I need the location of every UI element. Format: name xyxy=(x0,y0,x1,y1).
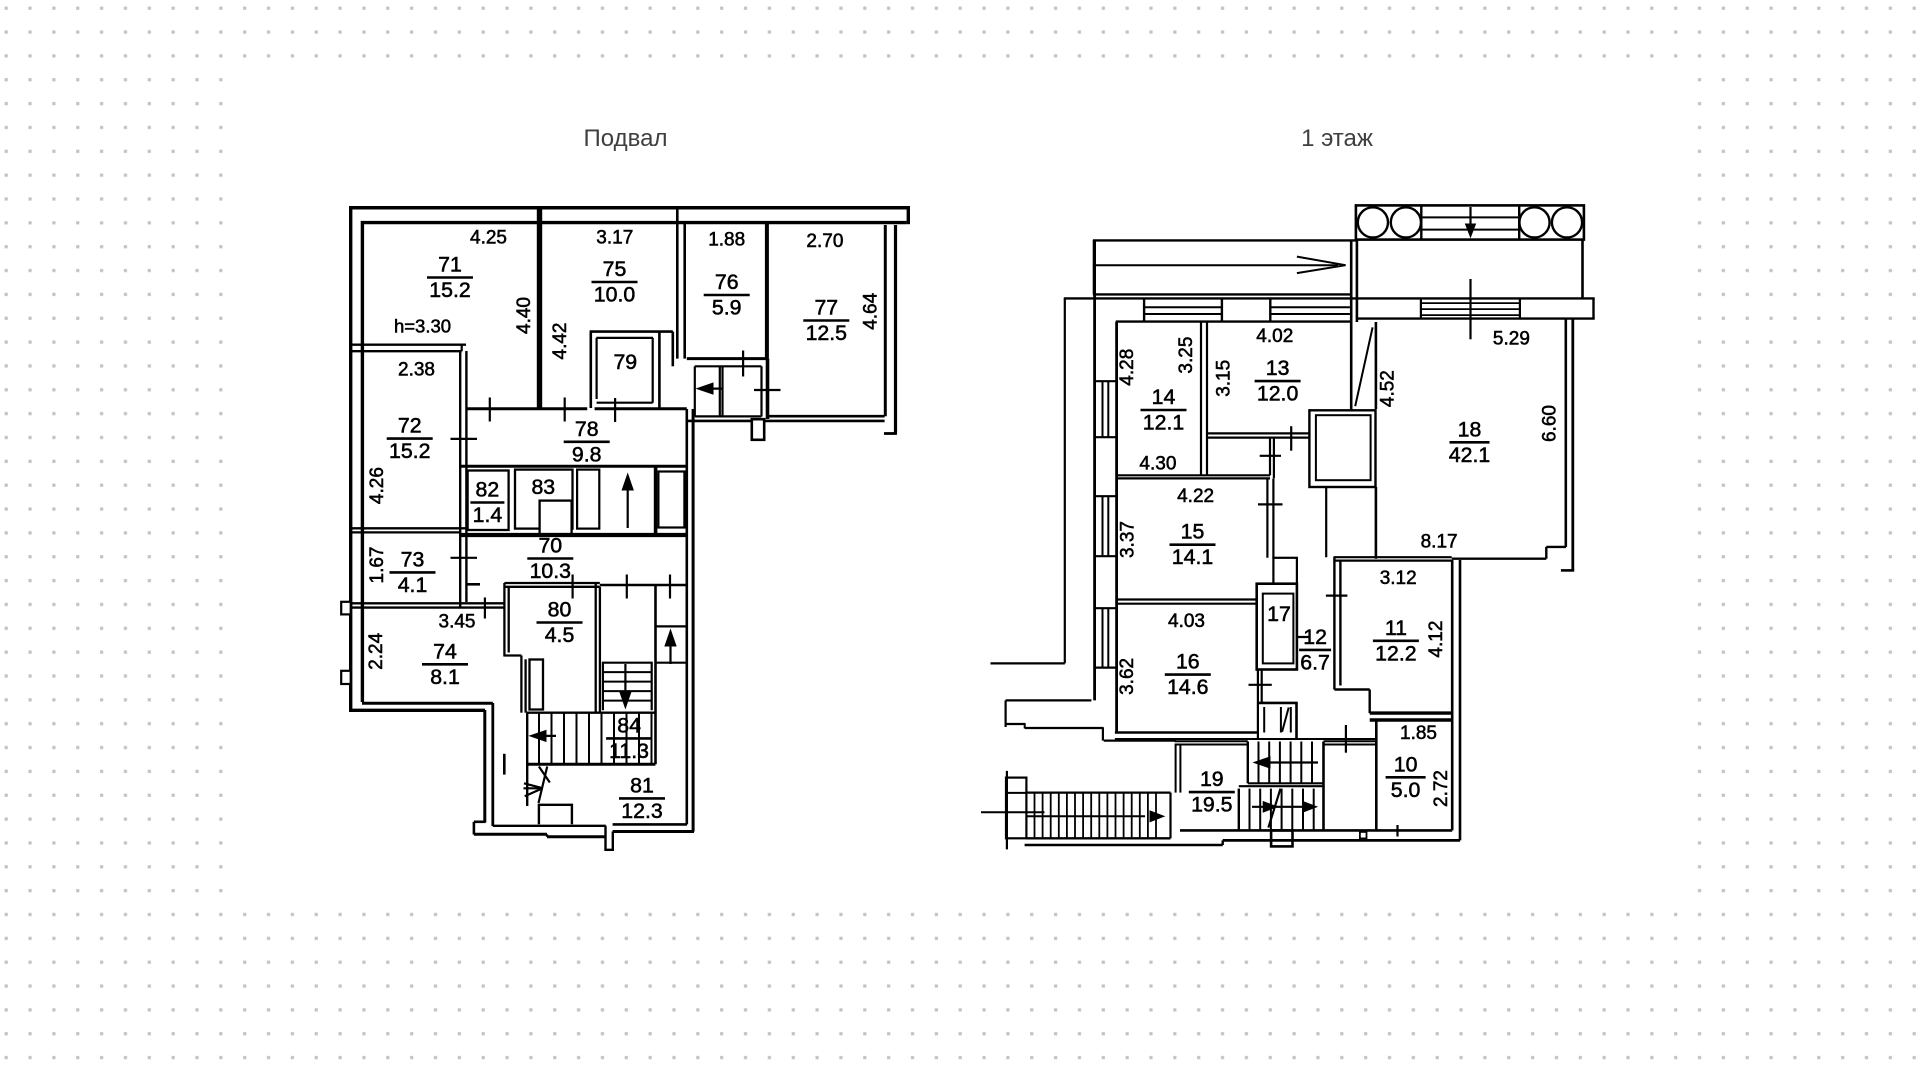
svg-text:13: 13 xyxy=(1266,356,1290,380)
svg-text:6.60: 6.60 xyxy=(1540,405,1561,442)
svg-text:11: 11 xyxy=(1385,616,1407,640)
svg-text:14.1: 14.1 xyxy=(1172,545,1213,569)
svg-text:h=3.30: h=3.30 xyxy=(394,316,451,337)
svg-text:1 этаж: 1 этаж xyxy=(1301,125,1373,152)
svg-text:1.67: 1.67 xyxy=(367,547,388,584)
svg-text:4.28: 4.28 xyxy=(1117,349,1138,386)
svg-text:79: 79 xyxy=(613,350,637,374)
svg-text:82: 82 xyxy=(476,478,500,502)
svg-text:14: 14 xyxy=(1152,385,1176,409)
svg-text:74: 74 xyxy=(433,639,457,663)
svg-text:4.1: 4.1 xyxy=(398,573,428,597)
svg-text:19.5: 19.5 xyxy=(1191,793,1232,817)
svg-text:10: 10 xyxy=(1394,752,1418,776)
svg-text:10.0: 10.0 xyxy=(594,283,636,307)
svg-text:14.6: 14.6 xyxy=(1167,675,1208,699)
svg-text:4.12: 4.12 xyxy=(1426,621,1447,658)
svg-text:12.0: 12.0 xyxy=(1257,382,1299,406)
svg-text:84: 84 xyxy=(617,713,641,737)
svg-text:3.25: 3.25 xyxy=(1176,337,1197,374)
svg-text:4.30: 4.30 xyxy=(1139,454,1176,475)
svg-text:4.26: 4.26 xyxy=(367,467,388,504)
svg-text:72: 72 xyxy=(398,414,422,438)
svg-text:17: 17 xyxy=(1267,602,1291,626)
svg-text:12.5: 12.5 xyxy=(806,321,847,345)
svg-text:Подвал: Подвал xyxy=(584,125,668,152)
svg-text:3.12: 3.12 xyxy=(1380,568,1417,589)
svg-text:4.03: 4.03 xyxy=(1168,611,1205,632)
svg-text:5.0: 5.0 xyxy=(1391,778,1421,802)
svg-text:4.5: 4.5 xyxy=(545,623,575,647)
svg-text:3.17: 3.17 xyxy=(596,228,633,249)
svg-text:4.40: 4.40 xyxy=(514,297,535,334)
svg-text:15.2: 15.2 xyxy=(429,278,470,302)
svg-text:12.2: 12.2 xyxy=(1375,641,1416,665)
svg-text:76: 76 xyxy=(715,270,739,294)
svg-text:3.62: 3.62 xyxy=(1117,658,1138,695)
svg-text:11.3: 11.3 xyxy=(609,739,649,763)
svg-text:4.02: 4.02 xyxy=(1256,326,1293,347)
svg-text:4.64: 4.64 xyxy=(860,292,881,329)
svg-text:77: 77 xyxy=(814,296,838,320)
svg-text:15.2: 15.2 xyxy=(389,439,430,463)
svg-text:8.1: 8.1 xyxy=(430,665,460,689)
svg-text:42.1: 42.1 xyxy=(1449,443,1490,467)
svg-text:2.24: 2.24 xyxy=(366,632,387,669)
svg-text:19: 19 xyxy=(1200,767,1224,791)
svg-text:83: 83 xyxy=(531,475,555,499)
svg-text:4.52: 4.52 xyxy=(1378,370,1399,407)
svg-text:1.88: 1.88 xyxy=(708,230,745,251)
svg-text:75: 75 xyxy=(603,257,627,281)
svg-text:16: 16 xyxy=(1176,650,1200,674)
svg-text:9.8: 9.8 xyxy=(572,442,602,466)
svg-text:8.17: 8.17 xyxy=(1421,531,1458,552)
svg-text:12.3: 12.3 xyxy=(621,799,662,823)
svg-text:2.72: 2.72 xyxy=(1431,770,1452,807)
svg-text:2.70: 2.70 xyxy=(806,231,843,252)
svg-text:78: 78 xyxy=(575,417,599,441)
svg-text:12.1: 12.1 xyxy=(1143,411,1184,435)
svg-text:4.25: 4.25 xyxy=(470,228,507,249)
svg-text:3.15: 3.15 xyxy=(1213,360,1234,397)
svg-text:5.29: 5.29 xyxy=(1493,329,1530,350)
svg-text:10.3: 10.3 xyxy=(530,559,571,583)
svg-text:81: 81 xyxy=(630,773,654,797)
svg-text:3.45: 3.45 xyxy=(439,612,476,633)
svg-text:71: 71 xyxy=(438,253,462,277)
svg-text:15: 15 xyxy=(1181,520,1205,544)
svg-text:70: 70 xyxy=(538,534,562,558)
svg-text:5.9: 5.9 xyxy=(712,296,742,320)
svg-text:4.42: 4.42 xyxy=(550,323,571,360)
svg-text:4.22: 4.22 xyxy=(1177,486,1214,507)
svg-text:73: 73 xyxy=(401,547,425,571)
svg-text:18: 18 xyxy=(1458,417,1482,441)
svg-text:80: 80 xyxy=(548,598,572,622)
svg-text:1.85: 1.85 xyxy=(1400,723,1437,744)
svg-text:1.4: 1.4 xyxy=(473,503,503,527)
svg-text:2.38: 2.38 xyxy=(398,360,435,381)
svg-text:6.7: 6.7 xyxy=(1300,650,1330,674)
svg-text:3.37: 3.37 xyxy=(1118,521,1139,558)
svg-text:12: 12 xyxy=(1303,625,1327,649)
